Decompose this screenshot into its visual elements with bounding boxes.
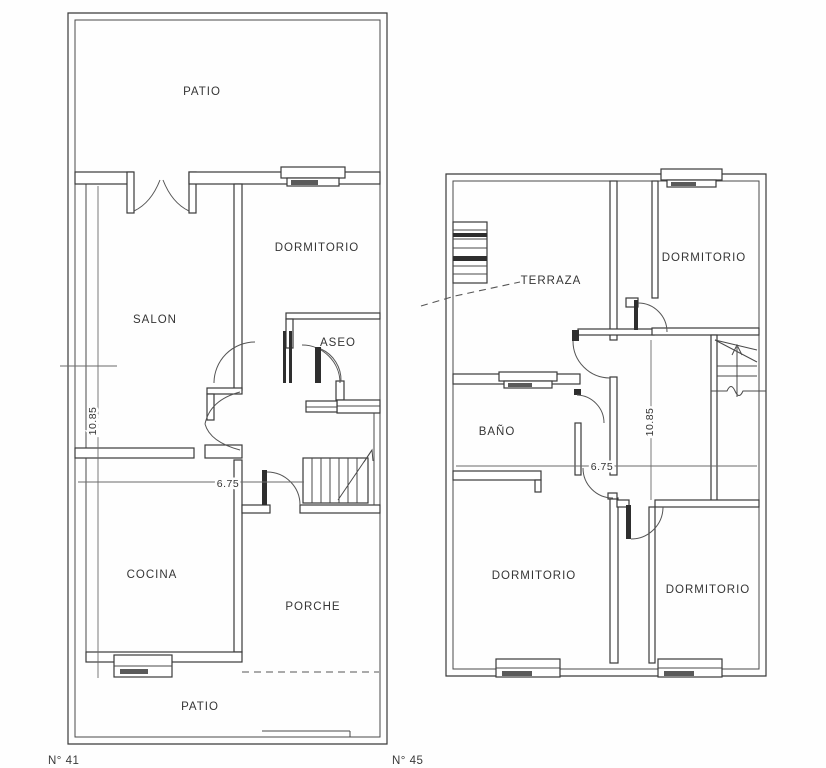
plan45-dormitorio-top-window [661, 169, 722, 187]
room-label-salon: SALON [133, 314, 177, 326]
plan45-terraza-stairs [453, 222, 487, 283]
dimension-label-vertical-41: 10.85 [87, 407, 99, 436]
plan41-cocina-window [114, 655, 172, 677]
room-label-patio-top: PATIO [183, 86, 221, 98]
plan45-terraza-leader-line [421, 282, 520, 306]
room-label-dormitorio-bottom-left: DORMITORIO [492, 570, 577, 582]
plan41-dormitorio-window [281, 167, 345, 186]
dimension-label-horizontal-41: 6.75 [217, 478, 239, 490]
floor-plan-page: PATIO DORMITORIO SALON ASEO COCINA PORCH… [0, 0, 826, 768]
plan41-inner-wall [75, 20, 380, 737]
room-label-porche: PORCHE [285, 601, 340, 613]
plan45-outer-wall [446, 174, 766, 676]
plan-number-41: N° 41 [48, 755, 79, 767]
plan-45: TERRAZA DORMITORIO BAÑO DORMITORIO DORMI… [392, 169, 766, 767]
dimension-label-horizontal-45: 6.75 [591, 461, 613, 473]
floor-plan-drawing: PATIO DORMITORIO SALON ASEO COCINA PORCH… [0, 0, 826, 768]
plan45-staircase [711, 340, 766, 397]
plan41-staircase [303, 450, 373, 503]
dimension-label-vertical-45: 10.85 [644, 408, 656, 437]
room-label-cocina: COCINA [127, 569, 178, 581]
room-label-dormitorio-top: DORMITORIO [662, 252, 747, 264]
plan-41: PATIO DORMITORIO SALON ASEO COCINA PORCH… [48, 13, 387, 767]
plan41-patio-step [262, 731, 350, 737]
plan45-bano-window [499, 372, 557, 388]
plan45-dormitorio-br-window [658, 659, 722, 677]
room-label-dormitorio-bottom-right: DORMITORIO [666, 584, 751, 596]
plan41-entrance-double-door [134, 180, 189, 211]
plan-number-45: N° 45 [392, 755, 423, 767]
plan45-dormitorio-bl-window [496, 659, 560, 677]
room-label-dormitorio: DORMITORIO [275, 242, 360, 254]
room-label-aseo: ASEO [320, 337, 356, 349]
room-label-terraza: TERRAZA [521, 275, 582, 287]
plan41-outer-wall [68, 13, 387, 744]
room-label-bano: BAÑO [479, 425, 516, 438]
plan41-interior-walls [75, 184, 380, 662]
room-label-patio-bottom: PATIO [181, 701, 219, 713]
